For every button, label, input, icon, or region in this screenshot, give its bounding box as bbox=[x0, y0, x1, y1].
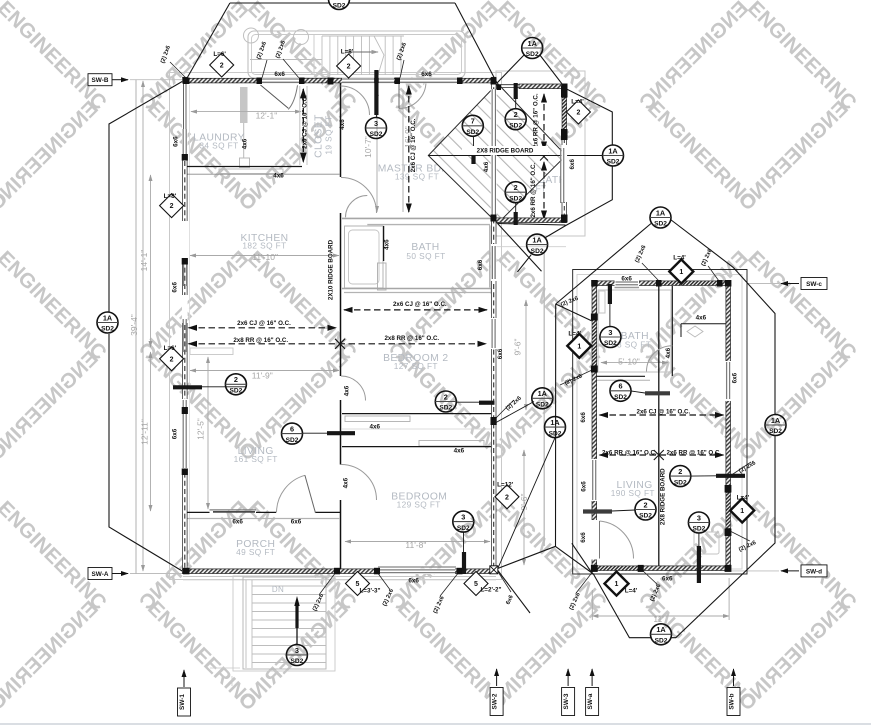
svg-text:4x6: 4x6 bbox=[483, 161, 490, 172]
svg-text:SD2: SD2 bbox=[692, 526, 705, 533]
svg-text:1A: 1A bbox=[538, 389, 548, 398]
svg-text:SD2: SD2 bbox=[639, 513, 652, 520]
svg-text:1A: 1A bbox=[550, 418, 560, 427]
svg-text:L=8': L=8' bbox=[341, 49, 354, 56]
svg-text:SD2: SD2 bbox=[457, 525, 470, 532]
svg-text:5: 5 bbox=[474, 581, 478, 588]
svg-text:12'-1": 12'-1" bbox=[256, 111, 278, 121]
svg-text:L=3'-3": L=3'-3" bbox=[359, 588, 380, 595]
svg-text:2X10 RIDGE BOARD: 2X10 RIDGE BOARD bbox=[328, 239, 335, 300]
svg-text:2: 2 bbox=[514, 183, 518, 192]
svg-text:SD2: SD2 bbox=[531, 248, 544, 255]
svg-text:3: 3 bbox=[697, 513, 701, 522]
svg-text:6x6: 6x6 bbox=[580, 532, 587, 543]
svg-text:2X8 RIDGE BOARD: 2X8 RIDGE BOARD bbox=[660, 468, 667, 525]
svg-text:6x6: 6x6 bbox=[581, 481, 588, 492]
svg-text:6x6: 6x6 bbox=[291, 519, 302, 526]
svg-text:1: 1 bbox=[577, 344, 581, 351]
svg-text:2x6 RR @ 16" O.C.: 2x6 RR @ 16" O.C. bbox=[533, 93, 540, 148]
svg-text:127 SQ FT: 127 SQ FT bbox=[394, 361, 438, 371]
svg-text:1A: 1A bbox=[771, 416, 781, 425]
svg-text:4x6: 4x6 bbox=[696, 315, 707, 322]
svg-text:L=6': L=6' bbox=[164, 345, 177, 352]
svg-text:SD2: SD2 bbox=[509, 195, 522, 202]
svg-text:L=4': L=4' bbox=[737, 495, 750, 502]
svg-text:2x6 CJ @ 16" O.C.: 2x6 CJ @ 16" O.C. bbox=[637, 409, 691, 416]
svg-text:L=2'-2": L=2'-2" bbox=[480, 587, 501, 594]
svg-text:6x6: 6x6 bbox=[408, 578, 419, 585]
svg-text:SW-b: SW-b bbox=[729, 693, 736, 709]
svg-text:6x6: 6x6 bbox=[621, 276, 632, 283]
svg-text:2x6 RR @ 16" O.C.: 2x6 RR @ 16" O.C. bbox=[666, 450, 721, 457]
svg-text:4x6: 4x6 bbox=[339, 119, 346, 130]
svg-text:SD2: SD2 bbox=[466, 129, 479, 136]
svg-text:SW-B: SW-B bbox=[92, 77, 109, 84]
svg-text:11'-9": 11'-9" bbox=[252, 370, 273, 380]
svg-text:4x6: 4x6 bbox=[369, 423, 380, 430]
svg-text:4x6: 4x6 bbox=[242, 138, 249, 149]
svg-text:4x6: 4x6 bbox=[383, 239, 390, 250]
svg-text:SD2: SD2 bbox=[290, 658, 303, 665]
svg-text:2x6 CJ @ 16" O.C.: 2x6 CJ @ 16" O.C. bbox=[237, 320, 291, 327]
svg-text:4x6: 4x6 bbox=[454, 448, 465, 455]
svg-text:SW-3: SW-3 bbox=[563, 693, 570, 709]
svg-text:SD2: SD2 bbox=[333, 3, 346, 10]
svg-text:6x6: 6x6 bbox=[421, 71, 432, 78]
svg-text:11'-8": 11'-8" bbox=[405, 540, 426, 550]
svg-text:2: 2 bbox=[576, 110, 580, 117]
svg-text:SD2: SD2 bbox=[101, 326, 114, 333]
svg-text:6x6: 6x6 bbox=[232, 519, 243, 526]
svg-text:SD2: SD2 bbox=[549, 430, 562, 437]
svg-text:SW-d: SW-d bbox=[806, 568, 822, 575]
svg-text:6x6: 6x6 bbox=[497, 348, 504, 359]
svg-text:L=4': L=4' bbox=[625, 588, 638, 595]
svg-text:1A: 1A bbox=[334, 0, 344, 2]
svg-text:1: 1 bbox=[679, 269, 683, 276]
svg-text:4x6: 4x6 bbox=[343, 477, 350, 488]
svg-text:6x6: 6x6 bbox=[172, 282, 179, 293]
svg-text:SD2: SD2 bbox=[370, 131, 383, 138]
svg-text:2x8 RR @ 16" O.C.: 2x8 RR @ 16" O.C. bbox=[384, 335, 439, 342]
svg-text:2: 2 bbox=[220, 63, 224, 70]
svg-text:SD2: SD2 bbox=[536, 402, 549, 409]
svg-text:2x6 CJ @ 16" O.C.: 2x6 CJ @ 16" O.C. bbox=[393, 301, 447, 308]
svg-text:SD2: SD2 bbox=[604, 340, 617, 347]
svg-text:12'-11": 12'-11" bbox=[140, 419, 150, 445]
svg-text:9'-6": 9'-6" bbox=[513, 339, 523, 356]
svg-text:(2) 2x6: (2) 2x6 bbox=[505, 395, 524, 412]
svg-text:2: 2 bbox=[234, 375, 238, 384]
svg-text:2: 2 bbox=[514, 110, 518, 119]
svg-text:3: 3 bbox=[295, 646, 299, 655]
svg-text:7: 7 bbox=[471, 117, 475, 126]
svg-text:2: 2 bbox=[170, 203, 174, 210]
svg-text:SW-1: SW-1 bbox=[179, 694, 186, 710]
svg-text:SD2: SD2 bbox=[674, 479, 687, 486]
svg-text:12'-5": 12'-5" bbox=[196, 418, 206, 440]
svg-text:4x6: 4x6 bbox=[273, 173, 284, 180]
svg-text:SD2: SD2 bbox=[526, 51, 539, 58]
svg-text:1A: 1A bbox=[103, 313, 113, 322]
svg-text:5'-10": 5'-10" bbox=[618, 357, 640, 367]
svg-text:(2) 2x6: (2) 2x6 bbox=[433, 595, 447, 615]
svg-text:2: 2 bbox=[170, 356, 174, 363]
svg-text:1A: 1A bbox=[656, 208, 666, 217]
svg-text:(2) 2x6: (2) 2x6 bbox=[738, 540, 758, 554]
svg-text:(2) 2x6: (2) 2x6 bbox=[396, 41, 408, 61]
svg-text:6x6: 6x6 bbox=[173, 136, 180, 147]
svg-text:190 SQ FT: 190 SQ FT bbox=[611, 488, 655, 498]
svg-text:SD2: SD2 bbox=[607, 159, 620, 166]
svg-text:SD2: SD2 bbox=[439, 405, 452, 412]
svg-text:6x6: 6x6 bbox=[477, 259, 484, 270]
svg-text:182 SQ FT: 182 SQ FT bbox=[242, 241, 286, 251]
svg-text:6x6: 6x6 bbox=[505, 594, 515, 606]
svg-text:11': 11' bbox=[653, 614, 664, 624]
svg-text:(2) 2x6: (2) 2x6 bbox=[701, 247, 715, 267]
svg-text:10'-7": 10'-7" bbox=[363, 136, 373, 158]
svg-text:SD2: SD2 bbox=[655, 638, 668, 645]
svg-text:6x6: 6x6 bbox=[569, 158, 576, 169]
svg-text:SD2: SD2 bbox=[229, 388, 242, 395]
svg-text:SD2: SD2 bbox=[654, 221, 667, 228]
svg-text:SW-a: SW-a bbox=[587, 693, 594, 709]
svg-text:2x6 CJ @ 16" O.C.: 2x6 CJ @ 16" O.C. bbox=[410, 118, 417, 172]
svg-text:6: 6 bbox=[618, 382, 622, 391]
svg-text:1A: 1A bbox=[656, 625, 666, 634]
svg-text:4x6: 4x6 bbox=[665, 347, 672, 358]
svg-text:129 SQ FT: 129 SQ FT bbox=[397, 500, 441, 510]
svg-text:SD2: SD2 bbox=[769, 428, 782, 435]
svg-text:19 SQ FT: 19 SQ FT bbox=[324, 115, 334, 154]
svg-text:1: 1 bbox=[740, 508, 744, 515]
svg-text:2x6 CJ @ 16" O.C.: 2x6 CJ @ 16" O.C. bbox=[302, 95, 309, 149]
svg-text:161 SQ FT: 161 SQ FT bbox=[234, 454, 278, 464]
svg-text:SD2: SD2 bbox=[614, 394, 627, 401]
svg-text:11'-10": 11'-10" bbox=[252, 252, 278, 262]
svg-text:1A: 1A bbox=[608, 146, 618, 155]
svg-text:SD2: SD2 bbox=[286, 437, 299, 444]
svg-text:L=12': L=12' bbox=[497, 482, 514, 489]
svg-text:SW-2: SW-2 bbox=[492, 693, 499, 709]
svg-text:2x6 RR @ 16" O.C.: 2x6 RR @ 16" O.C. bbox=[530, 163, 537, 218]
svg-text:SW-A: SW-A bbox=[92, 571, 109, 578]
svg-text:(2) 2x6: (2) 2x6 bbox=[160, 44, 172, 64]
svg-text:6x6: 6x6 bbox=[732, 372, 739, 383]
svg-text:34 SQ FT: 34 SQ FT bbox=[199, 141, 238, 151]
svg-text:(2) 2x6: (2) 2x6 bbox=[634, 244, 648, 264]
svg-text:SD2: SD2 bbox=[509, 122, 522, 129]
svg-text:2: 2 bbox=[505, 494, 509, 501]
svg-text:DN: DN bbox=[272, 585, 284, 594]
svg-text:3: 3 bbox=[374, 119, 378, 128]
svg-text:6x6: 6x6 bbox=[274, 71, 285, 78]
svg-text:50 SQ FT: 50 SQ FT bbox=[406, 251, 445, 261]
svg-text:1A: 1A bbox=[532, 235, 542, 244]
svg-text:6x6: 6x6 bbox=[662, 576, 673, 583]
svg-text:L=4': L=4' bbox=[568, 331, 581, 338]
svg-text:6: 6 bbox=[290, 424, 294, 433]
svg-text:2x8 RR @ 16" O.C.: 2x8 RR @ 16" O.C. bbox=[233, 337, 288, 344]
svg-text:2: 2 bbox=[643, 500, 647, 509]
svg-text:2: 2 bbox=[347, 64, 351, 71]
svg-text:14'-1": 14'-1" bbox=[139, 250, 149, 272]
svg-text:49 SQ FT: 49 SQ FT bbox=[236, 547, 275, 557]
svg-text:3: 3 bbox=[608, 328, 612, 337]
svg-text:L=4': L=4' bbox=[571, 99, 584, 106]
svg-text:2x6 RR @ 16" O.C.: 2x6 RR @ 16" O.C. bbox=[602, 450, 657, 457]
svg-text:(2) 2x6: (2) 2x6 bbox=[256, 40, 268, 60]
svg-text:2: 2 bbox=[444, 392, 448, 401]
svg-text:2: 2 bbox=[678, 467, 682, 476]
svg-text:L=4': L=4' bbox=[673, 255, 686, 262]
svg-text:6x6: 6x6 bbox=[172, 428, 179, 439]
svg-text:2X8 RIDGE BOARD: 2X8 RIDGE BOARD bbox=[477, 148, 534, 155]
svg-text:3: 3 bbox=[461, 512, 465, 521]
svg-text:6x6: 6x6 bbox=[580, 412, 587, 423]
svg-text:L=8': L=8' bbox=[164, 193, 177, 200]
svg-text:L=6': L=6' bbox=[213, 51, 226, 58]
svg-text:1A: 1A bbox=[528, 39, 538, 48]
svg-text:SW-c: SW-c bbox=[806, 281, 822, 288]
svg-text:1: 1 bbox=[615, 581, 619, 588]
svg-text:4x6: 4x6 bbox=[344, 385, 351, 396]
svg-text:39'-4": 39'-4" bbox=[129, 314, 139, 336]
